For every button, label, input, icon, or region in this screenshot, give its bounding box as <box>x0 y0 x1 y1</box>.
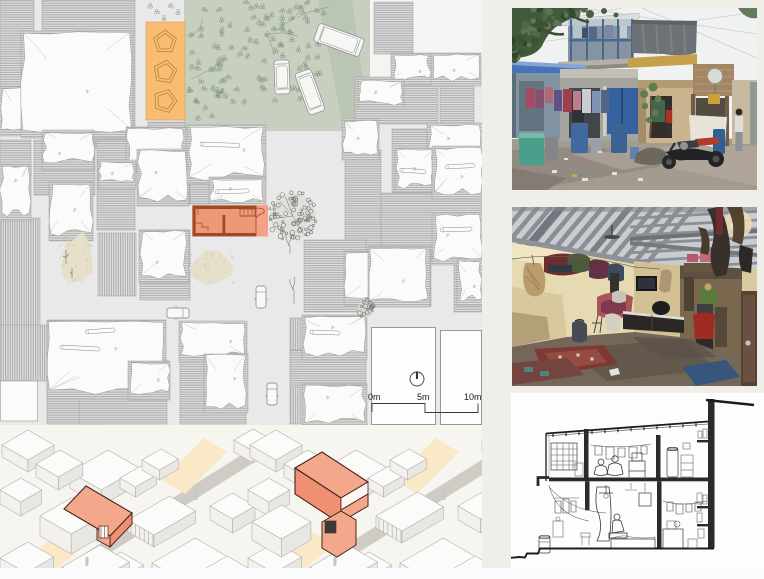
svg-text:5m: 5m <box>417 392 430 402</box>
svg-text:0m: 0m <box>368 392 381 402</box>
svg-text:10m: 10m <box>464 392 482 402</box>
